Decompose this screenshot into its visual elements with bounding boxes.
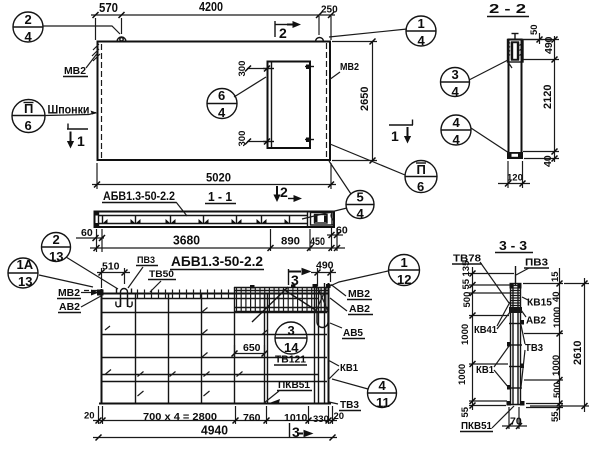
svg-text:300: 300 bbox=[237, 61, 248, 77]
svg-text:КВ1: КВ1 bbox=[476, 364, 494, 376]
svg-text:АВ2: АВ2 bbox=[59, 301, 80, 313]
svg-text:4: 4 bbox=[452, 84, 460, 99]
svg-text:2: 2 bbox=[279, 25, 287, 41]
svg-text:1010: 1010 bbox=[284, 412, 308, 424]
svg-text:450: 450 bbox=[310, 236, 325, 248]
svg-text:4: 4 bbox=[25, 29, 33, 44]
svg-text:ПВ3: ПВ3 bbox=[525, 257, 548, 269]
svg-text:120: 120 bbox=[507, 173, 523, 184]
svg-text:55: 55 bbox=[460, 406, 471, 417]
svg-text:3: 3 bbox=[452, 67, 459, 82]
svg-text:500: 500 bbox=[552, 382, 563, 398]
svg-text:2: 2 bbox=[25, 12, 32, 27]
svg-text:1000: 1000 bbox=[551, 355, 562, 376]
svg-text:3: 3 bbox=[288, 323, 295, 338]
svg-text:МВ2: МВ2 bbox=[64, 65, 86, 77]
svg-text:ПКВ51: ПКВ51 bbox=[278, 379, 310, 391]
svg-text:МВ2: МВ2 bbox=[58, 287, 80, 299]
svg-text:40: 40 bbox=[542, 155, 554, 167]
svg-text:1: 1 bbox=[391, 128, 399, 144]
svg-text:5020: 5020 bbox=[206, 171, 231, 185]
svg-text:АБВ1.3-50-2.2: АБВ1.3-50-2.2 bbox=[171, 254, 263, 269]
svg-text:4940: 4940 bbox=[201, 424, 228, 438]
svg-text:ТВ50: ТВ50 bbox=[149, 269, 174, 280]
svg-text:1000: 1000 bbox=[460, 324, 471, 345]
svg-text:55: 55 bbox=[550, 411, 561, 422]
svg-text:55: 55 bbox=[461, 278, 472, 289]
svg-text:1: 1 bbox=[401, 255, 408, 270]
svg-text:700 х 4 = 2800: 700 х 4 = 2800 bbox=[143, 411, 217, 423]
svg-text:1 - 1: 1 - 1 bbox=[208, 189, 232, 204]
svg-text:2: 2 bbox=[280, 184, 288, 200]
svg-text:890: 890 bbox=[281, 236, 300, 248]
svg-text:4: 4 bbox=[418, 33, 426, 48]
svg-text:4: 4 bbox=[218, 105, 226, 120]
svg-text:5: 5 bbox=[357, 190, 364, 205]
svg-text:3: 3 bbox=[291, 272, 299, 288]
svg-text:2650: 2650 bbox=[359, 87, 371, 111]
svg-text:60: 60 bbox=[81, 227, 93, 239]
svg-text:650: 650 bbox=[243, 342, 261, 354]
svg-text:АВ5: АВ5 bbox=[343, 327, 363, 339]
svg-text:П: П bbox=[417, 162, 426, 177]
svg-text:АБВ1.3-50-2.2: АБВ1.3-50-2.2 bbox=[103, 189, 175, 203]
svg-text:12: 12 bbox=[397, 272, 411, 287]
svg-text:6: 6 bbox=[25, 118, 32, 133]
svg-text:13: 13 bbox=[49, 249, 63, 264]
svg-text:1000: 1000 bbox=[552, 307, 563, 328]
svg-text:1: 1 bbox=[418, 16, 425, 31]
svg-text:4: 4 bbox=[453, 115, 461, 130]
svg-text:4: 4 bbox=[357, 206, 365, 221]
svg-text:250: 250 bbox=[321, 5, 338, 16]
svg-text:135: 135 bbox=[461, 260, 472, 277]
svg-text:ТВ121: ТВ121 bbox=[275, 354, 306, 366]
svg-text:3680: 3680 bbox=[173, 234, 200, 248]
svg-text:КВ41: КВ41 bbox=[474, 324, 497, 336]
svg-text:2 - 2: 2 - 2 bbox=[489, 1, 526, 16]
svg-text:МВ2: МВ2 bbox=[340, 61, 359, 73]
svg-text:КВ1: КВ1 bbox=[340, 362, 358, 374]
svg-text:ПКВ51: ПКВ51 bbox=[461, 420, 492, 432]
svg-text:40: 40 bbox=[551, 291, 562, 302]
svg-text:490: 490 bbox=[543, 36, 555, 54]
svg-text:ПВ3: ПВ3 bbox=[137, 255, 155, 266]
svg-text:АВ2: АВ2 bbox=[526, 315, 546, 327]
svg-text:6: 6 bbox=[417, 179, 424, 194]
svg-text:11: 11 bbox=[376, 395, 390, 410]
svg-text:ТВ3: ТВ3 bbox=[525, 342, 543, 354]
svg-text:570: 570 bbox=[99, 0, 118, 15]
svg-text:АВ2: АВ2 bbox=[349, 303, 370, 315]
svg-text:П: П bbox=[24, 101, 33, 116]
svg-text:ТВ3: ТВ3 bbox=[340, 399, 359, 411]
svg-text:2: 2 bbox=[53, 232, 60, 247]
svg-text:510: 510 bbox=[102, 261, 120, 273]
svg-text:МВ2: МВ2 bbox=[348, 288, 370, 300]
svg-text:4200: 4200 bbox=[199, 0, 223, 14]
svg-text:20: 20 bbox=[84, 411, 95, 422]
svg-text:13: 13 bbox=[18, 274, 32, 289]
svg-text:15: 15 bbox=[550, 271, 561, 282]
svg-text:1А: 1А bbox=[17, 257, 34, 272]
svg-text:1000: 1000 bbox=[457, 364, 468, 385]
svg-text:КВ15: КВ15 bbox=[527, 297, 552, 309]
svg-text:760: 760 bbox=[243, 412, 261, 424]
svg-text:2120: 2120 bbox=[542, 85, 554, 109]
svg-text:60: 60 bbox=[336, 225, 348, 237]
svg-text:3 - 3: 3 - 3 bbox=[499, 238, 527, 253]
svg-text:4: 4 bbox=[453, 132, 461, 147]
svg-text:2610: 2610 bbox=[572, 341, 584, 365]
svg-text:330: 330 bbox=[313, 414, 329, 425]
svg-text:6: 6 bbox=[218, 88, 225, 103]
svg-text:50: 50 bbox=[529, 24, 540, 35]
svg-text:4: 4 bbox=[379, 378, 387, 393]
svg-text:1: 1 bbox=[77, 133, 85, 149]
svg-text:20: 20 bbox=[334, 411, 345, 422]
svg-text:500: 500 bbox=[462, 292, 473, 308]
